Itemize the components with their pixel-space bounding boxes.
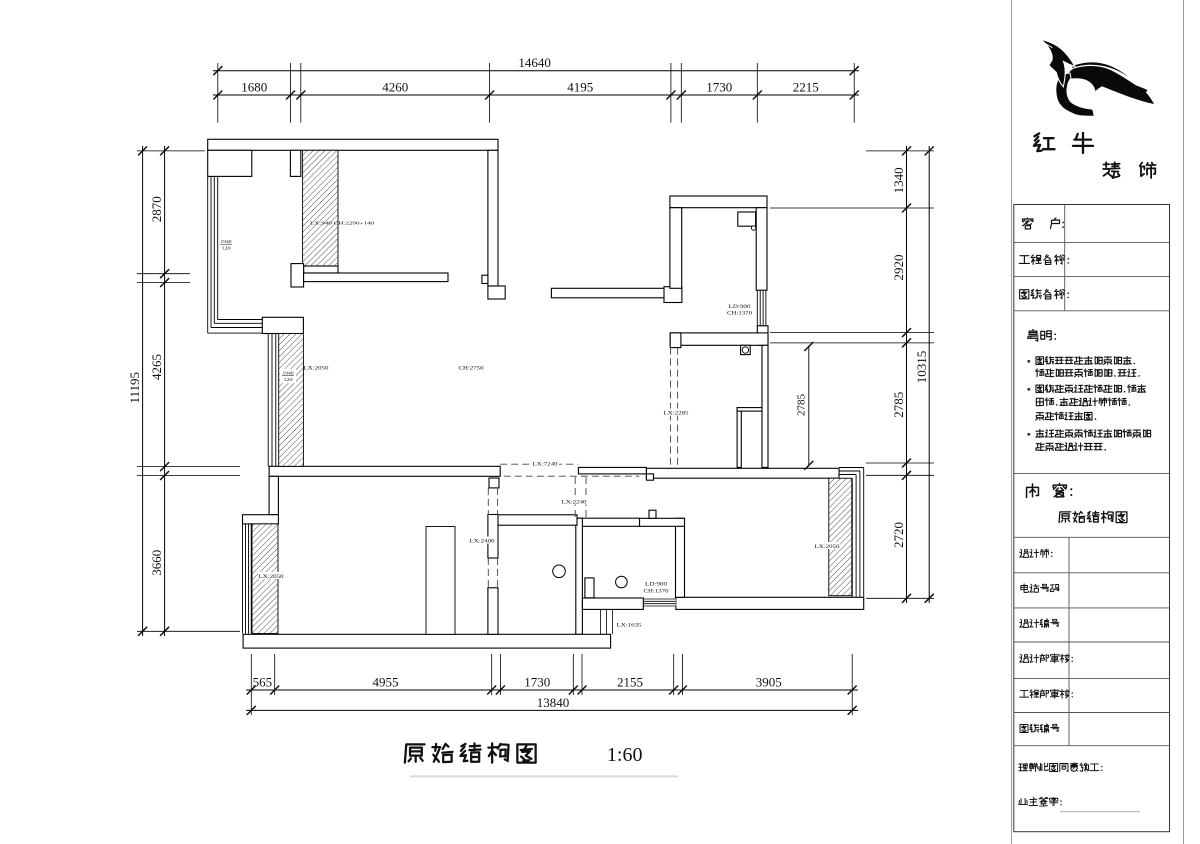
svg-text:2920: 2920 bbox=[891, 255, 906, 281]
svg-text:1730: 1730 bbox=[706, 80, 732, 95]
svg-text:4955: 4955 bbox=[373, 675, 399, 690]
svg-text:4260: 4260 bbox=[382, 80, 408, 95]
svg-text:1:60: 1:60 bbox=[607, 744, 643, 766]
svg-text:120: 120 bbox=[222, 246, 232, 251]
svg-text:4195: 4195 bbox=[567, 80, 593, 95]
svg-text:1940: 1940 bbox=[221, 239, 233, 244]
svg-text:CH:1370: CH:1370 bbox=[644, 590, 670, 595]
svg-text:LX:2400: LX:2400 bbox=[470, 540, 496, 545]
svg-text:2215: 2215 bbox=[793, 80, 819, 95]
svg-text:2155: 2155 bbox=[617, 675, 643, 690]
svg-text:LX:940 CH:2290+140: LX:940 CH:2290+140 bbox=[310, 221, 375, 226]
svg-text:10315: 10315 bbox=[914, 351, 929, 384]
svg-text:14640: 14640 bbox=[518, 55, 551, 70]
svg-text:4265: 4265 bbox=[149, 354, 164, 380]
svg-text:1340: 1340 bbox=[891, 167, 906, 193]
svg-text:1730: 1730 bbox=[524, 675, 550, 690]
svg-text:1680: 1680 bbox=[241, 80, 267, 95]
svg-text:565: 565 bbox=[253, 675, 273, 690]
svg-text:2785: 2785 bbox=[891, 392, 906, 418]
svg-text:LX:2285: LX:2285 bbox=[664, 412, 690, 417]
svg-text:3905: 3905 bbox=[756, 675, 782, 690]
svg-text:2720: 2720 bbox=[891, 522, 906, 548]
svg-text:LD:900: LD:900 bbox=[645, 583, 668, 588]
svg-text:1940: 1940 bbox=[283, 371, 295, 376]
svg-text:CH:1370: CH:1370 bbox=[727, 312, 753, 317]
svg-text:3660: 3660 bbox=[149, 550, 164, 576]
svg-text:LX:2050: LX:2050 bbox=[815, 545, 841, 550]
svg-text:11195: 11195 bbox=[127, 372, 142, 404]
svg-text:LX:7240: LX:7240 bbox=[533, 462, 559, 467]
svg-text:13840: 13840 bbox=[537, 695, 570, 710]
svg-text:LX:2050: LX:2050 bbox=[304, 367, 330, 372]
svg-text:120: 120 bbox=[284, 377, 294, 382]
svg-text:2785: 2785 bbox=[796, 394, 808, 417]
svg-text:LX:2050: LX:2050 bbox=[259, 575, 285, 580]
svg-text:CH:2750: CH:2750 bbox=[459, 367, 485, 372]
svg-text:2870: 2870 bbox=[149, 196, 164, 222]
svg-text:LD:900: LD:900 bbox=[729, 305, 752, 310]
svg-text:LX:2240: LX:2240 bbox=[562, 501, 588, 506]
svg-text:LX:1635: LX:1635 bbox=[617, 624, 643, 629]
